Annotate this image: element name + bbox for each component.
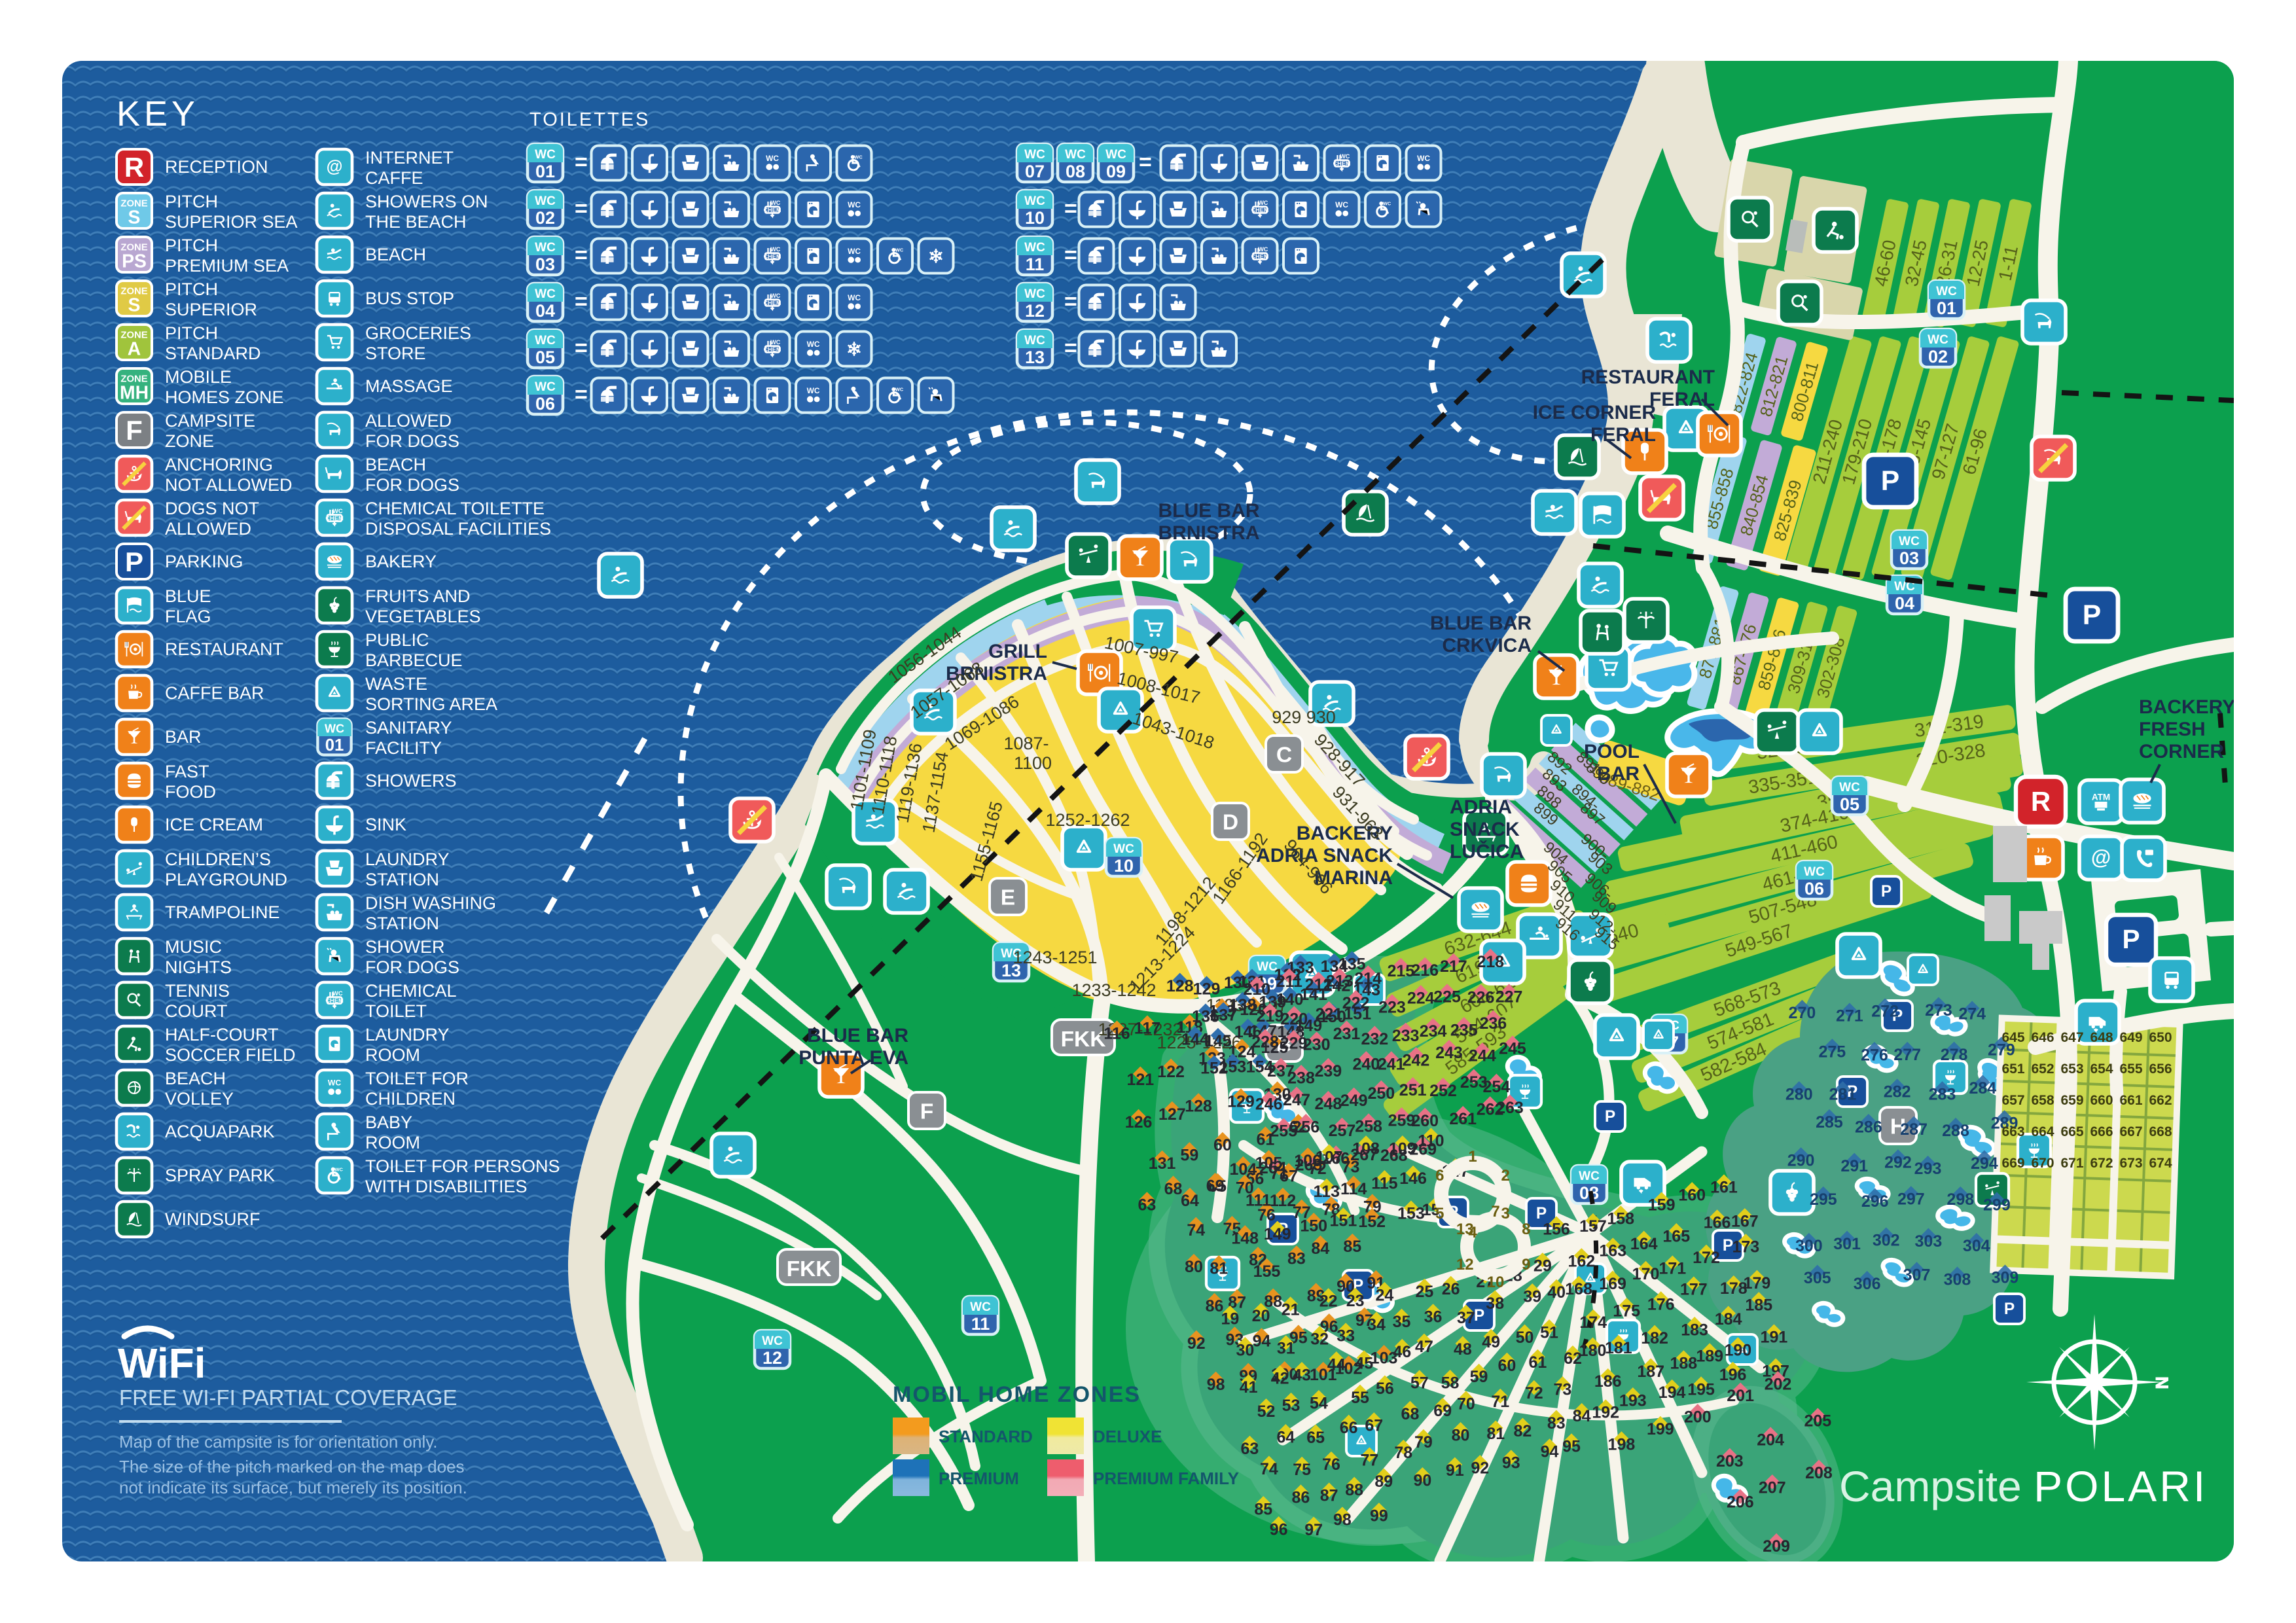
svg-text:243: 243: [1435, 1044, 1463, 1062]
svg-text:CAMPSITE: CAMPSITE: [165, 411, 255, 431]
svg-text:STANDARD: STANDARD: [165, 344, 261, 363]
svg-text:ADRIA: ADRIA: [1450, 796, 1512, 818]
svg-text:113: 113: [1314, 1183, 1340, 1201]
svg-text:39: 39: [1523, 1287, 1541, 1306]
svg-text:A: A: [128, 338, 141, 359]
svg-text:173: 173: [1732, 1238, 1759, 1257]
svg-text:WC: WC: [328, 1079, 341, 1088]
svg-text:80: 80: [1185, 1258, 1203, 1276]
svg-text:151: 151: [1330, 1212, 1357, 1230]
svg-text:WC: WC: [1065, 148, 1086, 162]
svg-text:42: 42: [1271, 1369, 1289, 1387]
svg-text:94: 94: [1253, 1332, 1271, 1350]
svg-text:122: 122: [1157, 1063, 1185, 1081]
svg-text:126: 126: [1125, 1113, 1153, 1132]
svg-text:=: =: [1064, 243, 1077, 268]
svg-text:3: 3: [1501, 1205, 1510, 1222]
svg-text:207: 207: [1759, 1478, 1786, 1497]
svg-text:98: 98: [1207, 1376, 1225, 1394]
svg-text:ALLOWED: ALLOWED: [165, 519, 251, 539]
svg-text:60: 60: [1213, 1136, 1232, 1154]
svg-text:257: 257: [1329, 1122, 1356, 1140]
svg-text:165: 165: [1662, 1227, 1690, 1245]
svg-text:6: 6: [1435, 1167, 1444, 1185]
svg-text:117: 117: [1134, 1020, 1160, 1038]
svg-text:94: 94: [1541, 1443, 1559, 1461]
svg-text:not indicate its surface, but: not indicate its surface, but merely its…: [119, 1478, 467, 1497]
svg-text:10: 10: [1114, 856, 1134, 876]
svg-text:ADRIA SNACK: ADRIA SNACK: [1256, 845, 1393, 866]
svg-text:FACILITY: FACILITY: [365, 738, 442, 758]
svg-text:174: 174: [1579, 1313, 1607, 1332]
svg-text:THE BEACH: THE BEACH: [365, 212, 467, 232]
svg-text:282: 282: [1884, 1083, 1911, 1101]
svg-text:156: 156: [1543, 1221, 1570, 1239]
svg-text:672: 672: [2090, 1156, 2113, 1171]
svg-text:VEGETABLES: VEGETABLES: [365, 607, 481, 626]
svg-text:247: 247: [1283, 1091, 1310, 1109]
svg-text:CHILDREN’S: CHILDREN’S: [165, 849, 271, 869]
svg-text:89: 89: [1374, 1472, 1393, 1491]
svg-text:224: 224: [1407, 989, 1435, 1007]
svg-text:251: 251: [1399, 1081, 1427, 1099]
svg-text:PITCH: PITCH: [165, 279, 218, 299]
svg-text:240: 240: [1353, 1055, 1380, 1073]
svg-text:BLUE BAR: BLUE BAR: [1158, 500, 1260, 522]
svg-text:167: 167: [1731, 1212, 1759, 1230]
svg-text:220: 220: [1280, 1010, 1308, 1029]
svg-text:283: 283: [1929, 1085, 1956, 1103]
svg-text:PREMIUM: PREMIUM: [939, 1469, 1019, 1488]
svg-text:CORNER: CORNER: [2139, 741, 2224, 762]
svg-text:63: 63: [1241, 1440, 1259, 1458]
svg-text:662: 662: [2149, 1093, 2172, 1108]
svg-text:ROOM: ROOM: [365, 1045, 420, 1065]
svg-text:63: 63: [1138, 1196, 1157, 1215]
svg-text:58: 58: [1441, 1374, 1460, 1392]
svg-text:CHEM: CHEM: [325, 515, 344, 522]
svg-text:78: 78: [1394, 1444, 1412, 1462]
svg-text:45: 45: [1355, 1355, 1373, 1373]
svg-text:280: 280: [1785, 1085, 1813, 1103]
svg-text:29: 29: [1534, 1257, 1552, 1275]
svg-text:109: 109: [1389, 1139, 1416, 1158]
svg-text:CHEM: CHEM: [1251, 207, 1269, 213]
svg-text:128: 128: [1185, 1097, 1212, 1116]
svg-text:145: 145: [1204, 1032, 1232, 1050]
svg-text:208: 208: [1805, 1464, 1833, 1482]
svg-text:72: 72: [1525, 1384, 1543, 1402]
svg-text:GRILL: GRILL: [988, 641, 1047, 662]
svg-text:297: 297: [1897, 1190, 1925, 1209]
svg-text:663: 663: [2001, 1124, 2024, 1139]
svg-text:WC: WC: [1024, 287, 1045, 301]
svg-text:244: 244: [1469, 1046, 1496, 1065]
svg-text:271: 271: [1836, 1007, 1863, 1026]
svg-text:ATM: ATM: [2092, 792, 2110, 802]
svg-text:232: 232: [1361, 1030, 1388, 1048]
svg-text:ICE CREAM: ICE CREAM: [165, 815, 263, 834]
svg-text:LAUNDRY: LAUNDRY: [365, 1025, 450, 1044]
svg-text:BARBECUE: BARBECUE: [365, 651, 463, 670]
svg-text:CHEM: CHEM: [764, 207, 781, 213]
svg-text:12: 12: [762, 1348, 782, 1368]
svg-text:DELUXE: DELUXE: [1093, 1427, 1162, 1446]
svg-text:VOLLEY: VOLLEY: [165, 1089, 234, 1109]
svg-text:59: 59: [1180, 1146, 1198, 1164]
svg-text:308: 308: [1944, 1271, 1971, 1289]
svg-text:160: 160: [1678, 1186, 1706, 1204]
svg-text:P: P: [1605, 1108, 1615, 1126]
svg-text:227: 227: [1496, 988, 1523, 1007]
svg-text:TOILET: TOILET: [365, 1001, 427, 1021]
svg-text:ROOM: ROOM: [365, 1133, 420, 1152]
svg-text:177: 177: [1680, 1281, 1708, 1299]
svg-text:01: 01: [535, 162, 555, 181]
svg-text:DISPOSAL FACILITIES: DISPOSAL FACILITIES: [365, 519, 551, 539]
svg-text:FOOD: FOOD: [165, 782, 216, 802]
svg-text:665: 665: [2060, 1124, 2083, 1139]
svg-text:COURT: COURT: [165, 1001, 228, 1021]
svg-text:WC: WC: [1928, 333, 1948, 347]
svg-text:163: 163: [1599, 1242, 1626, 1260]
svg-text:199: 199: [1647, 1420, 1674, 1438]
svg-text:180: 180: [1579, 1342, 1607, 1360]
svg-text:193: 193: [1619, 1391, 1647, 1410]
svg-text:183: 183: [1681, 1321, 1708, 1339]
svg-text:84: 84: [1573, 1407, 1591, 1425]
svg-text:TOILET FOR: TOILET FOR: [365, 1069, 469, 1088]
svg-text:1243-1251: 1243-1251: [1013, 948, 1097, 967]
svg-text:181: 181: [1605, 1339, 1632, 1357]
svg-text:671: 671: [2060, 1156, 2083, 1171]
svg-text:186: 186: [1594, 1372, 1622, 1391]
svg-text:129: 129: [1193, 980, 1221, 999]
svg-text:1: 1: [1468, 1148, 1477, 1166]
svg-text:CHILDREN: CHILDREN: [365, 1089, 456, 1109]
svg-text:215: 215: [1387, 962, 1414, 980]
svg-text:218: 218: [1477, 953, 1504, 971]
svg-text:MUSIC: MUSIC: [165, 937, 222, 957]
svg-text:TOILETTES: TOILETTES: [529, 109, 650, 130]
svg-text:WC: WC: [1024, 194, 1045, 208]
svg-text:SHOWER: SHOWER: [365, 937, 445, 957]
svg-text:=: =: [575, 150, 588, 175]
svg-text:204: 204: [1757, 1431, 1784, 1450]
svg-text:WC: WC: [848, 200, 861, 209]
svg-text:WC: WC: [535, 241, 556, 255]
svg-text:33: 33: [1336, 1327, 1355, 1346]
svg-text:PUBLIC: PUBLIC: [365, 630, 429, 650]
svg-text:WC: WC: [1113, 842, 1134, 856]
svg-text:CAFFE: CAFFE: [365, 168, 423, 188]
svg-text:P: P: [125, 546, 143, 577]
svg-text:24: 24: [1375, 1286, 1393, 1304]
svg-text:92: 92: [1471, 1459, 1489, 1477]
svg-text:HOMES ZONE: HOMES ZONE: [165, 387, 284, 407]
svg-text:ICE CORNER: ICE CORNER: [1533, 402, 1657, 423]
svg-text:233: 233: [1392, 1027, 1420, 1045]
svg-text:96: 96: [1270, 1520, 1288, 1539]
svg-text:64: 64: [1276, 1428, 1295, 1446]
svg-text:281: 281: [1829, 1085, 1857, 1103]
svg-text:169: 169: [1599, 1275, 1626, 1293]
svg-text:FRESH: FRESH: [2139, 719, 2206, 740]
svg-text:223: 223: [1378, 998, 1406, 1016]
svg-text:48: 48: [1454, 1340, 1472, 1359]
svg-text:66: 66: [1340, 1419, 1358, 1437]
svg-text:34: 34: [1367, 1316, 1386, 1334]
svg-text:S: S: [128, 294, 141, 315]
svg-text:C: C: [1276, 743, 1292, 767]
svg-text:68: 68: [1164, 1180, 1183, 1198]
svg-text:648: 648: [2090, 1030, 2113, 1045]
svg-text:674: 674: [2149, 1156, 2172, 1171]
svg-text:121: 121: [1126, 1071, 1154, 1089]
svg-text:5: 5: [1435, 1205, 1444, 1222]
svg-text:225: 225: [1433, 988, 1461, 1007]
svg-text:10: 10: [1025, 208, 1045, 228]
svg-text:43: 43: [1293, 1366, 1311, 1384]
svg-text:112: 112: [1270, 1192, 1296, 1210]
svg-text:BAR: BAR: [165, 727, 202, 747]
svg-text:666: 666: [2090, 1124, 2113, 1139]
svg-text:SORTING AREA: SORTING AREA: [365, 694, 497, 714]
svg-text:231: 231: [1333, 1025, 1361, 1043]
svg-text:155: 155: [1253, 1262, 1281, 1281]
svg-text:68: 68: [1401, 1405, 1420, 1423]
svg-text:WC: WC: [1335, 200, 1348, 209]
svg-text:WITH DISABILITIES: WITH DISABILITIES: [365, 1177, 528, 1196]
svg-text:152: 152: [1358, 1213, 1386, 1231]
svg-text:05: 05: [1840, 794, 1859, 814]
svg-text:37: 37: [1457, 1309, 1475, 1327]
svg-text:221: 221: [1316, 1005, 1343, 1024]
svg-text:53: 53: [1282, 1397, 1300, 1415]
svg-text:673: 673: [2119, 1156, 2142, 1171]
svg-text:F: F: [126, 415, 143, 446]
svg-text:=: =: [575, 289, 588, 314]
svg-text:202: 202: [1765, 1376, 1792, 1394]
svg-text:114: 114: [1340, 1180, 1367, 1198]
svg-text:MH: MH: [120, 382, 149, 403]
svg-text:WC: WC: [770, 200, 781, 206]
svg-text:234: 234: [1420, 1022, 1447, 1041]
svg-text:667: 667: [2119, 1124, 2142, 1139]
svg-text:CHEM: CHEM: [1251, 253, 1269, 260]
svg-text:185: 185: [1745, 1296, 1772, 1314]
svg-text:=: =: [575, 382, 588, 407]
svg-text:WC: WC: [535, 194, 556, 208]
svg-text:669: 669: [2001, 1156, 2024, 1171]
svg-text:252: 252: [1429, 1082, 1457, 1100]
svg-text:305: 305: [1804, 1269, 1831, 1287]
svg-text:291: 291: [1840, 1157, 1868, 1175]
svg-text:108: 108: [1352, 1139, 1380, 1158]
svg-text:239: 239: [1315, 1062, 1342, 1080]
svg-text:277: 277: [1893, 1046, 1921, 1064]
svg-text:298: 298: [1946, 1190, 1974, 1209]
svg-text:286: 286: [1855, 1118, 1882, 1136]
svg-text:PITCH: PITCH: [165, 236, 218, 255]
svg-text:05: 05: [535, 348, 555, 367]
svg-text:01: 01: [325, 736, 344, 755]
svg-text:651: 651: [2001, 1061, 2024, 1077]
svg-text:149: 149: [1264, 1225, 1291, 1243]
svg-text:90: 90: [1413, 1471, 1431, 1489]
svg-text:13: 13: [1025, 348, 1045, 367]
svg-text:293: 293: [1914, 1160, 1942, 1178]
svg-text:WC: WC: [535, 287, 556, 301]
svg-text:104: 104: [1230, 1160, 1257, 1179]
svg-text:304: 304: [1963, 1237, 1990, 1255]
svg-text:194: 194: [1659, 1383, 1686, 1402]
svg-text:NIGHTS: NIGHTS: [165, 957, 232, 977]
svg-text:WC: WC: [1258, 246, 1268, 253]
svg-text:06: 06: [535, 394, 555, 414]
svg-text:WC: WC: [895, 386, 904, 392]
svg-text:INTERNET: INTERNET: [365, 148, 454, 168]
svg-text:=: =: [1064, 196, 1077, 221]
svg-text:35: 35: [1393, 1313, 1411, 1331]
svg-text:TENNIS: TENNIS: [165, 981, 230, 1001]
svg-text:76: 76: [1322, 1455, 1340, 1474]
svg-text:276: 276: [1861, 1046, 1888, 1064]
svg-text:1087-: 1087-: [1003, 734, 1049, 753]
svg-text:1233-1242: 1233-1242: [1071, 980, 1156, 1000]
svg-text:198: 198: [1608, 1435, 1636, 1454]
svg-text:153: 153: [1397, 1205, 1425, 1223]
svg-text:248: 248: [1315, 1095, 1342, 1113]
svg-text:WC: WC: [332, 990, 343, 997]
svg-text:BLUE: BLUE: [165, 586, 211, 606]
svg-text:157: 157: [1579, 1217, 1607, 1236]
svg-text:190: 190: [1724, 1342, 1751, 1360]
svg-text:MASSAGE: MASSAGE: [365, 376, 453, 396]
svg-text:209: 209: [1763, 1537, 1790, 1556]
svg-text:82: 82: [1514, 1422, 1532, 1440]
svg-text:654: 654: [2090, 1061, 2113, 1077]
svg-text:ACQUAPARK: ACQUAPARK: [165, 1122, 275, 1141]
svg-text:FERAL: FERAL: [1590, 424, 1656, 446]
svg-text:79: 79: [1414, 1433, 1433, 1452]
svg-text:SNACK: SNACK: [1450, 819, 1520, 840]
svg-text:PITCH: PITCH: [165, 192, 218, 211]
svg-text:294: 294: [1971, 1154, 1998, 1173]
svg-text:STATION: STATION: [365, 870, 439, 889]
svg-text:71: 71: [1491, 1393, 1509, 1411]
svg-text:192: 192: [1592, 1404, 1619, 1422]
svg-text:8: 8: [1522, 1221, 1530, 1238]
svg-text:189: 189: [1696, 1347, 1723, 1366]
svg-text:210: 210: [1243, 980, 1270, 999]
svg-text:129: 129: [1227, 1092, 1255, 1111]
svg-text:285: 285: [1816, 1113, 1843, 1132]
svg-text:01: 01: [1937, 298, 1956, 318]
svg-text:81: 81: [1486, 1425, 1505, 1443]
svg-text:Map of the campsite is for ori: Map of the campsite is for orientation o…: [119, 1432, 438, 1452]
svg-text:203: 203: [1716, 1452, 1744, 1471]
svg-text:BABY: BABY: [365, 1113, 412, 1132]
svg-text:275: 275: [1818, 1043, 1846, 1061]
svg-text:R: R: [2031, 786, 2051, 817]
svg-text:670: 670: [2031, 1156, 2054, 1171]
svg-text:292: 292: [1884, 1154, 1912, 1172]
svg-text:74: 74: [1260, 1460, 1278, 1478]
svg-text:F: F: [920, 1099, 934, 1124]
svg-text:98: 98: [1333, 1511, 1352, 1529]
svg-text:FOR DOGS: FOR DOGS: [365, 475, 459, 495]
svg-text:296: 296: [1861, 1192, 1889, 1211]
svg-text:WC: WC: [854, 154, 863, 160]
svg-text:664: 664: [2031, 1124, 2054, 1139]
svg-text:301: 301: [1833, 1235, 1861, 1253]
svg-text:290: 290: [1787, 1151, 1815, 1169]
svg-text:92: 92: [1187, 1334, 1206, 1353]
svg-text:WC: WC: [807, 386, 820, 395]
svg-text:110: 110: [1418, 1132, 1444, 1150]
svg-text:RESTAURANT: RESTAURANT: [165, 639, 283, 659]
svg-text:13: 13: [1456, 1221, 1474, 1238]
svg-text:WC: WC: [535, 148, 556, 162]
svg-text:BAKERY: BAKERY: [365, 552, 437, 571]
svg-text:170: 170: [1632, 1265, 1660, 1283]
svg-text:222: 222: [1342, 994, 1370, 1012]
svg-text:WC: WC: [1258, 200, 1268, 206]
svg-text:196: 196: [1719, 1366, 1747, 1384]
svg-text:51: 51: [1540, 1323, 1558, 1342]
svg-text:93: 93: [1502, 1454, 1520, 1472]
svg-text:295: 295: [1810, 1190, 1837, 1209]
svg-text:20: 20: [1252, 1307, 1270, 1325]
svg-text:P: P: [2122, 924, 2140, 954]
svg-text:DISH WASHING: DISH WASHING: [365, 893, 496, 913]
svg-text:BLUE BAR: BLUE BAR: [1430, 613, 1532, 634]
svg-text:307: 307: [1903, 1266, 1931, 1285]
svg-text:38: 38: [1486, 1294, 1504, 1313]
svg-text:STANDARD: STANDARD: [939, 1427, 1033, 1446]
svg-text:87: 87: [1320, 1487, 1338, 1505]
svg-text:PLAYGROUND: PLAYGROUND: [165, 870, 287, 889]
svg-text:PREMIUM SEA: PREMIUM SEA: [165, 256, 289, 276]
svg-text:CAFFE BAR: CAFFE BAR: [165, 683, 264, 703]
svg-text:161: 161: [1710, 1179, 1738, 1197]
svg-text:The size of the pitch marked o: The size of the pitch marked on the map …: [119, 1457, 465, 1476]
svg-text:09: 09: [1106, 162, 1126, 181]
svg-text:=: =: [1139, 150, 1152, 175]
svg-text:PARKING: PARKING: [165, 552, 243, 571]
svg-text:BLUE BAR: BLUE BAR: [807, 1025, 908, 1046]
svg-text:205: 205: [1804, 1412, 1831, 1431]
svg-text:95: 95: [1562, 1438, 1581, 1456]
svg-text:ZONE: ZONE: [165, 431, 214, 451]
svg-text:NOT ALLOWED: NOT ALLOWED: [165, 475, 293, 495]
svg-text:2: 2: [1501, 1167, 1510, 1185]
svg-text:77: 77: [1360, 1452, 1378, 1470]
svg-text:116: 116: [1103, 1025, 1130, 1043]
svg-text:176: 176: [1647, 1295, 1675, 1313]
svg-text:105: 105: [1255, 1154, 1283, 1173]
svg-text:@: @: [327, 158, 343, 176]
svg-text:26: 26: [1442, 1280, 1460, 1298]
svg-text:201: 201: [1727, 1387, 1754, 1405]
svg-text:228: 228: [1251, 1033, 1279, 1052]
svg-text:214: 214: [1354, 969, 1382, 988]
svg-text:31: 31: [1277, 1340, 1295, 1358]
svg-text:653: 653: [2060, 1061, 2083, 1077]
svg-text:153: 153: [1219, 1058, 1247, 1076]
svg-text:WC: WC: [535, 380, 556, 394]
